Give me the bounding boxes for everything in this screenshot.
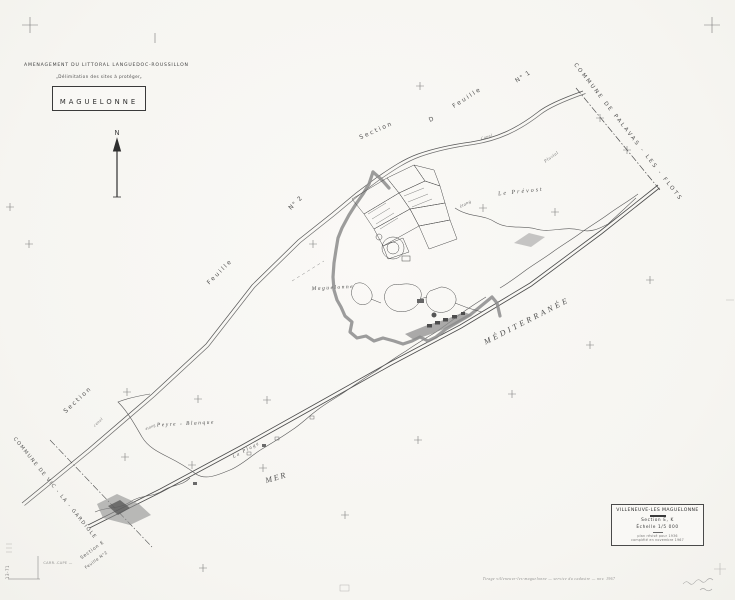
building: [432, 313, 437, 318]
map-label: Feuille: [451, 86, 483, 110]
grid-cross: [194, 395, 202, 403]
pond: [385, 284, 422, 312]
map-label: Section: [358, 120, 394, 141]
protected-site-boundary: [333, 172, 500, 344]
north-arrow-head: [114, 139, 121, 151]
beach-road-line2: [90, 188, 660, 528]
parcel: [399, 181, 445, 209]
map-label: Section: [62, 385, 93, 415]
handwriting-mark: [683, 579, 713, 591]
title-block: VILLENEUVE-LES MAGUELONNE Section E, K É…: [611, 504, 704, 546]
grid-cross: [414, 436, 422, 444]
grid-cross: [259, 464, 267, 472]
grid-cross: [551, 208, 559, 216]
marsh-edge-main: [118, 297, 486, 477]
building: [461, 312, 465, 315]
boundary-palavas: [576, 88, 660, 190]
map-label: Canal: [480, 132, 494, 141]
map-label: Feuille: [206, 258, 235, 287]
shaded-areas: [97, 233, 545, 525]
building: [262, 444, 266, 447]
parcel: [364, 193, 410, 229]
edge-box-mark: [340, 585, 349, 591]
parcel: [410, 203, 450, 226]
pond-connectors: [371, 297, 482, 312]
cadastral-map-sheet: AMENAGEMENT DU LITTORAL LANGUEDOC-ROUSSI…: [0, 0, 735, 600]
canal-bank-south: [25, 94, 586, 506]
parcel: [414, 165, 440, 186]
title-block-section: Section E, K: [613, 518, 702, 523]
handwriting-squiggle: [700, 589, 712, 591]
grid-cross: [199, 564, 207, 572]
title-block-scale: Échelle 1/5 000: [613, 525, 702, 530]
small-round-feature: [376, 234, 382, 240]
corner-mark-top-right: [704, 17, 720, 33]
grid-cross: [479, 204, 487, 212]
grid-cross: [263, 396, 271, 404]
canal: [22, 91, 586, 506]
pond: [352, 283, 373, 305]
corner-mark-bottom-right: [714, 563, 726, 575]
shade-east: [514, 233, 545, 247]
north-arrow: [113, 139, 121, 197]
map-label: étang: [144, 422, 156, 431]
coastline: [88, 185, 660, 528]
grid-cross: [309, 240, 317, 248]
parcel: [352, 178, 399, 214]
building: [193, 482, 197, 485]
map-label: Peyre - Blanque: [156, 419, 215, 428]
commune-boundaries: [50, 88, 660, 547]
grid-cross: [508, 390, 516, 398]
title-block-commune: VILLENEUVE-LES MAGUELONNE: [613, 508, 702, 513]
drain-dashed: [292, 261, 324, 281]
map-label: Maguelonne: [311, 284, 355, 292]
building-outline: [402, 256, 410, 261]
map-label: 13-71: [5, 565, 10, 579]
site-boundary-path: [333, 172, 500, 344]
map-label: Le Prévost: [497, 187, 544, 198]
map-label: MER: [263, 470, 288, 485]
map-label: Pluvial: [542, 150, 559, 164]
grid-cross: [6, 203, 14, 211]
marsh-edges: [95, 194, 638, 512]
grid-cross: [341, 511, 349, 519]
stamp-dashes: [6, 544, 12, 552]
parcel: [419, 220, 457, 249]
corner-mark-bottom-left: [8, 556, 40, 579]
building: [435, 321, 440, 325]
title-block-ornament: [650, 515, 666, 517]
parcel: [387, 165, 425, 193]
map-label: Tirage villeneuve-les-maguelonne — servi…: [483, 577, 616, 581]
parcel-hatch: [404, 188, 432, 207]
grid-cross: [646, 276, 654, 284]
title-block-rule: [653, 532, 663, 533]
boundary-vic-la-gardiole: [50, 440, 152, 547]
map-label: D: [428, 115, 435, 123]
beach-road-line1: [88, 185, 658, 525]
grid-cross: [586, 341, 594, 349]
map-label: La Plage: [231, 441, 261, 460]
building: [417, 299, 424, 303]
map-label: canal: [92, 416, 104, 428]
map-label: N: [114, 129, 119, 137]
map-label: CARR..CAPE —: [43, 561, 72, 565]
grid-cross: [25, 240, 33, 248]
grid-cross: [123, 388, 131, 396]
parcel-hatch: [368, 203, 398, 229]
prevost-shore: [455, 198, 636, 231]
building: [427, 324, 432, 328]
map-label: N° 1: [514, 69, 532, 84]
grid-cross: [416, 82, 424, 90]
parcels: [352, 165, 482, 312]
title-block-note2: complété en novembre 1967: [613, 538, 702, 542]
grid-cross: [121, 453, 129, 461]
map-label: étang: [459, 198, 473, 208]
map-label: N° 2: [287, 194, 304, 211]
pond: [426, 287, 456, 312]
canal-bank-north: [22, 91, 583, 503]
cathedral-mound-inner: [387, 242, 399, 254]
road-mark: [310, 416, 314, 419]
grid-cross: [188, 461, 196, 469]
building: [452, 315, 457, 319]
building: [443, 318, 448, 322]
map-label: COMMUNE DE PALAVAS - LES - FLOTS: [572, 62, 683, 202]
handwriting-squiggle: [683, 579, 713, 585]
corner-mark-top-left: [22, 17, 38, 33]
